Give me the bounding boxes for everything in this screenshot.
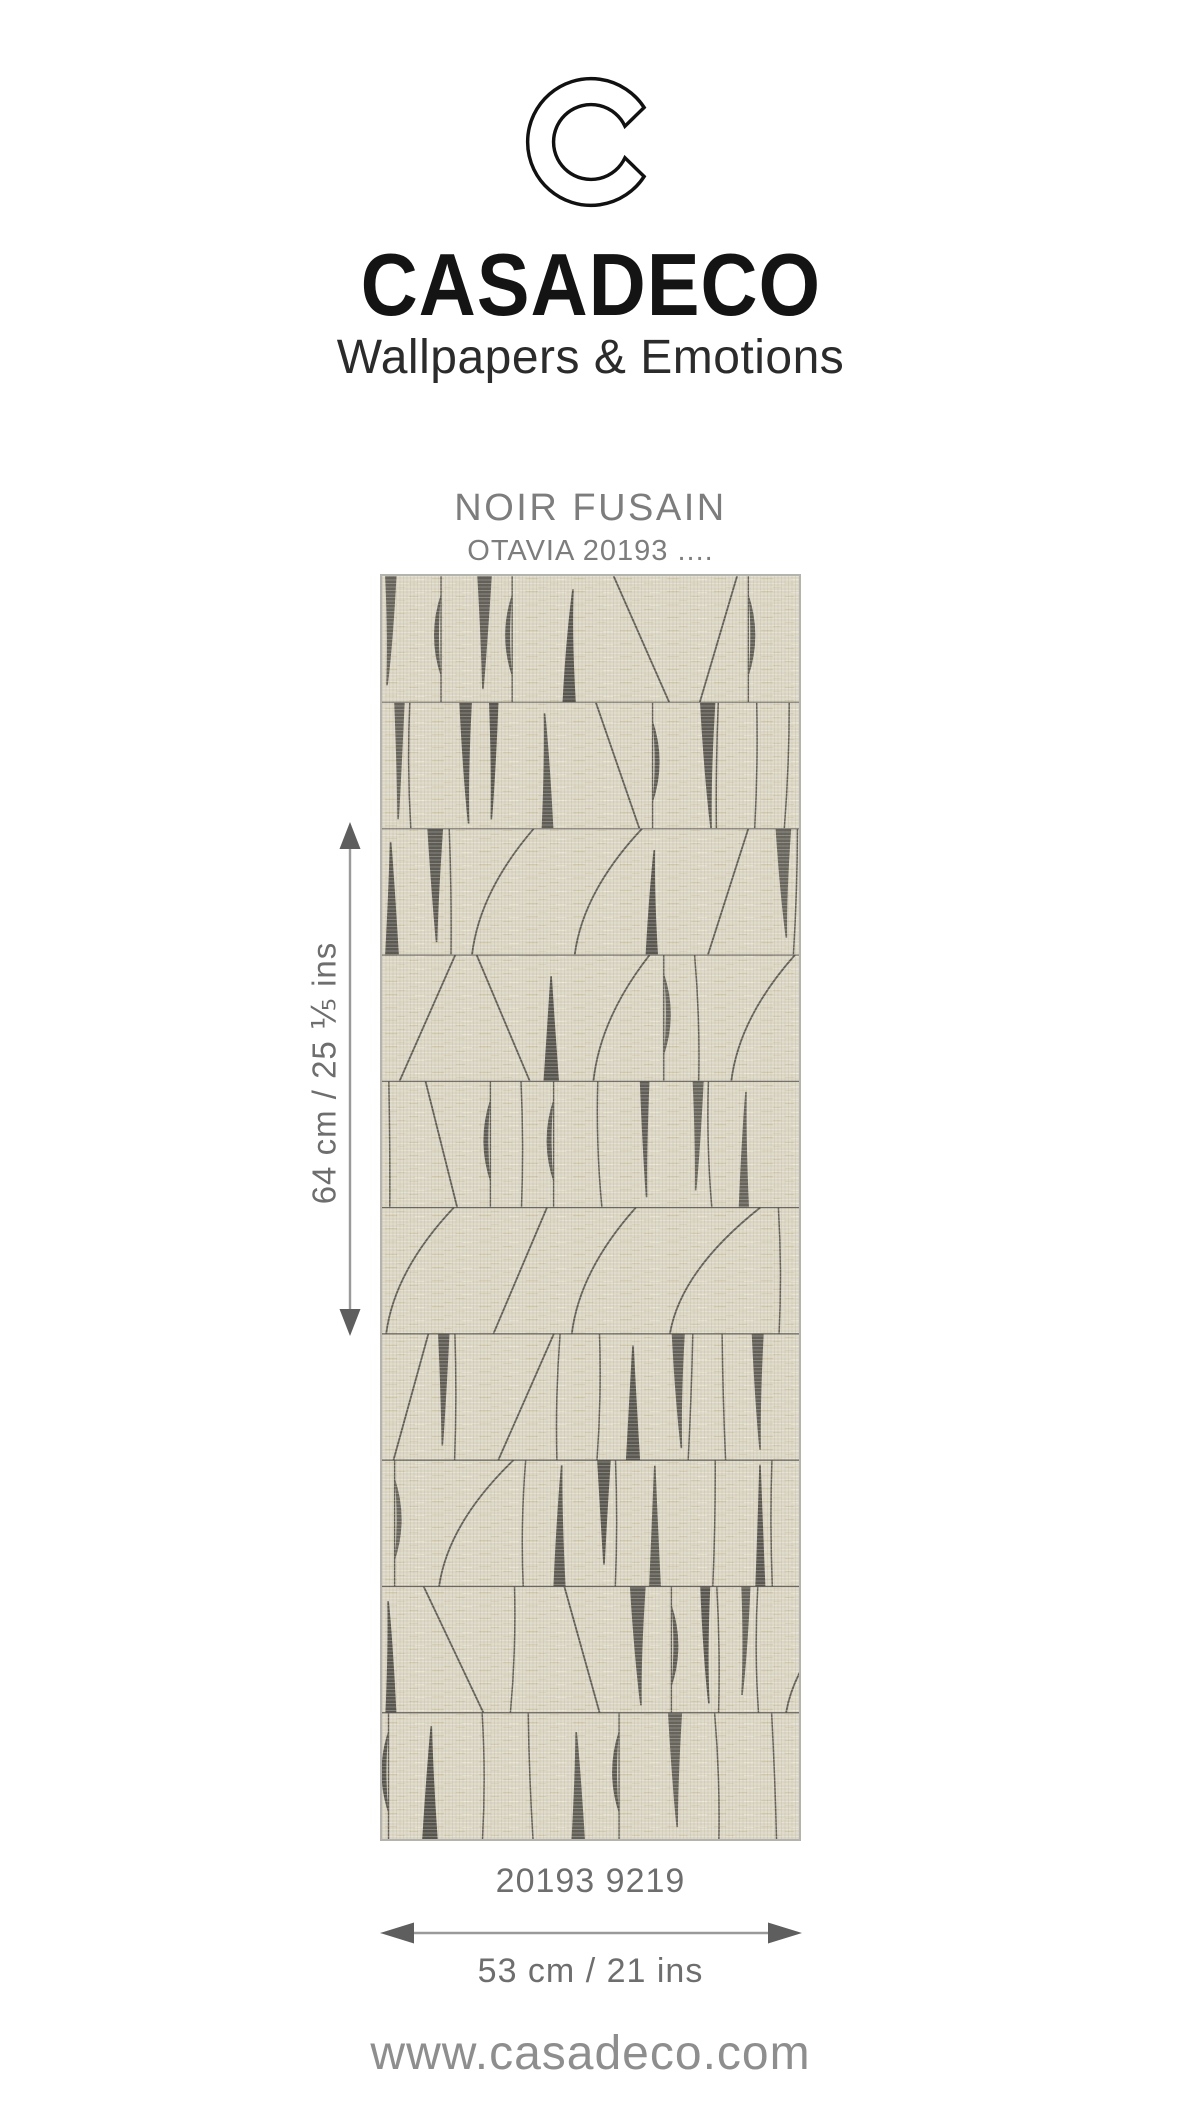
width-dimension-label: 53 cm / 21 ins	[0, 1952, 1181, 1991]
product-sheet: CASADECO Wallpapers & Emotions NOIR FUSA…	[0, 0, 1181, 2126]
product-subtitle: OTAVIA 20193 ....	[0, 535, 1181, 568]
brand-name: CASADECO	[0, 234, 1181, 336]
wallpaper-swatch	[380, 574, 801, 1841]
height-dimension-label: 64 cm / 25 ⅕ ins	[305, 942, 344, 1205]
brand-tagline: Wallpapers & Emotions	[0, 330, 1181, 385]
product-title: NOIR FUSAIN	[0, 487, 1181, 530]
width-dimension-arrow	[378, 1915, 804, 1951]
casadeco-logo-icon	[519, 70, 663, 214]
website-link[interactable]: www.casadeco.com	[0, 2026, 1181, 2081]
product-reference: 20193 9219	[0, 1862, 1181, 1901]
